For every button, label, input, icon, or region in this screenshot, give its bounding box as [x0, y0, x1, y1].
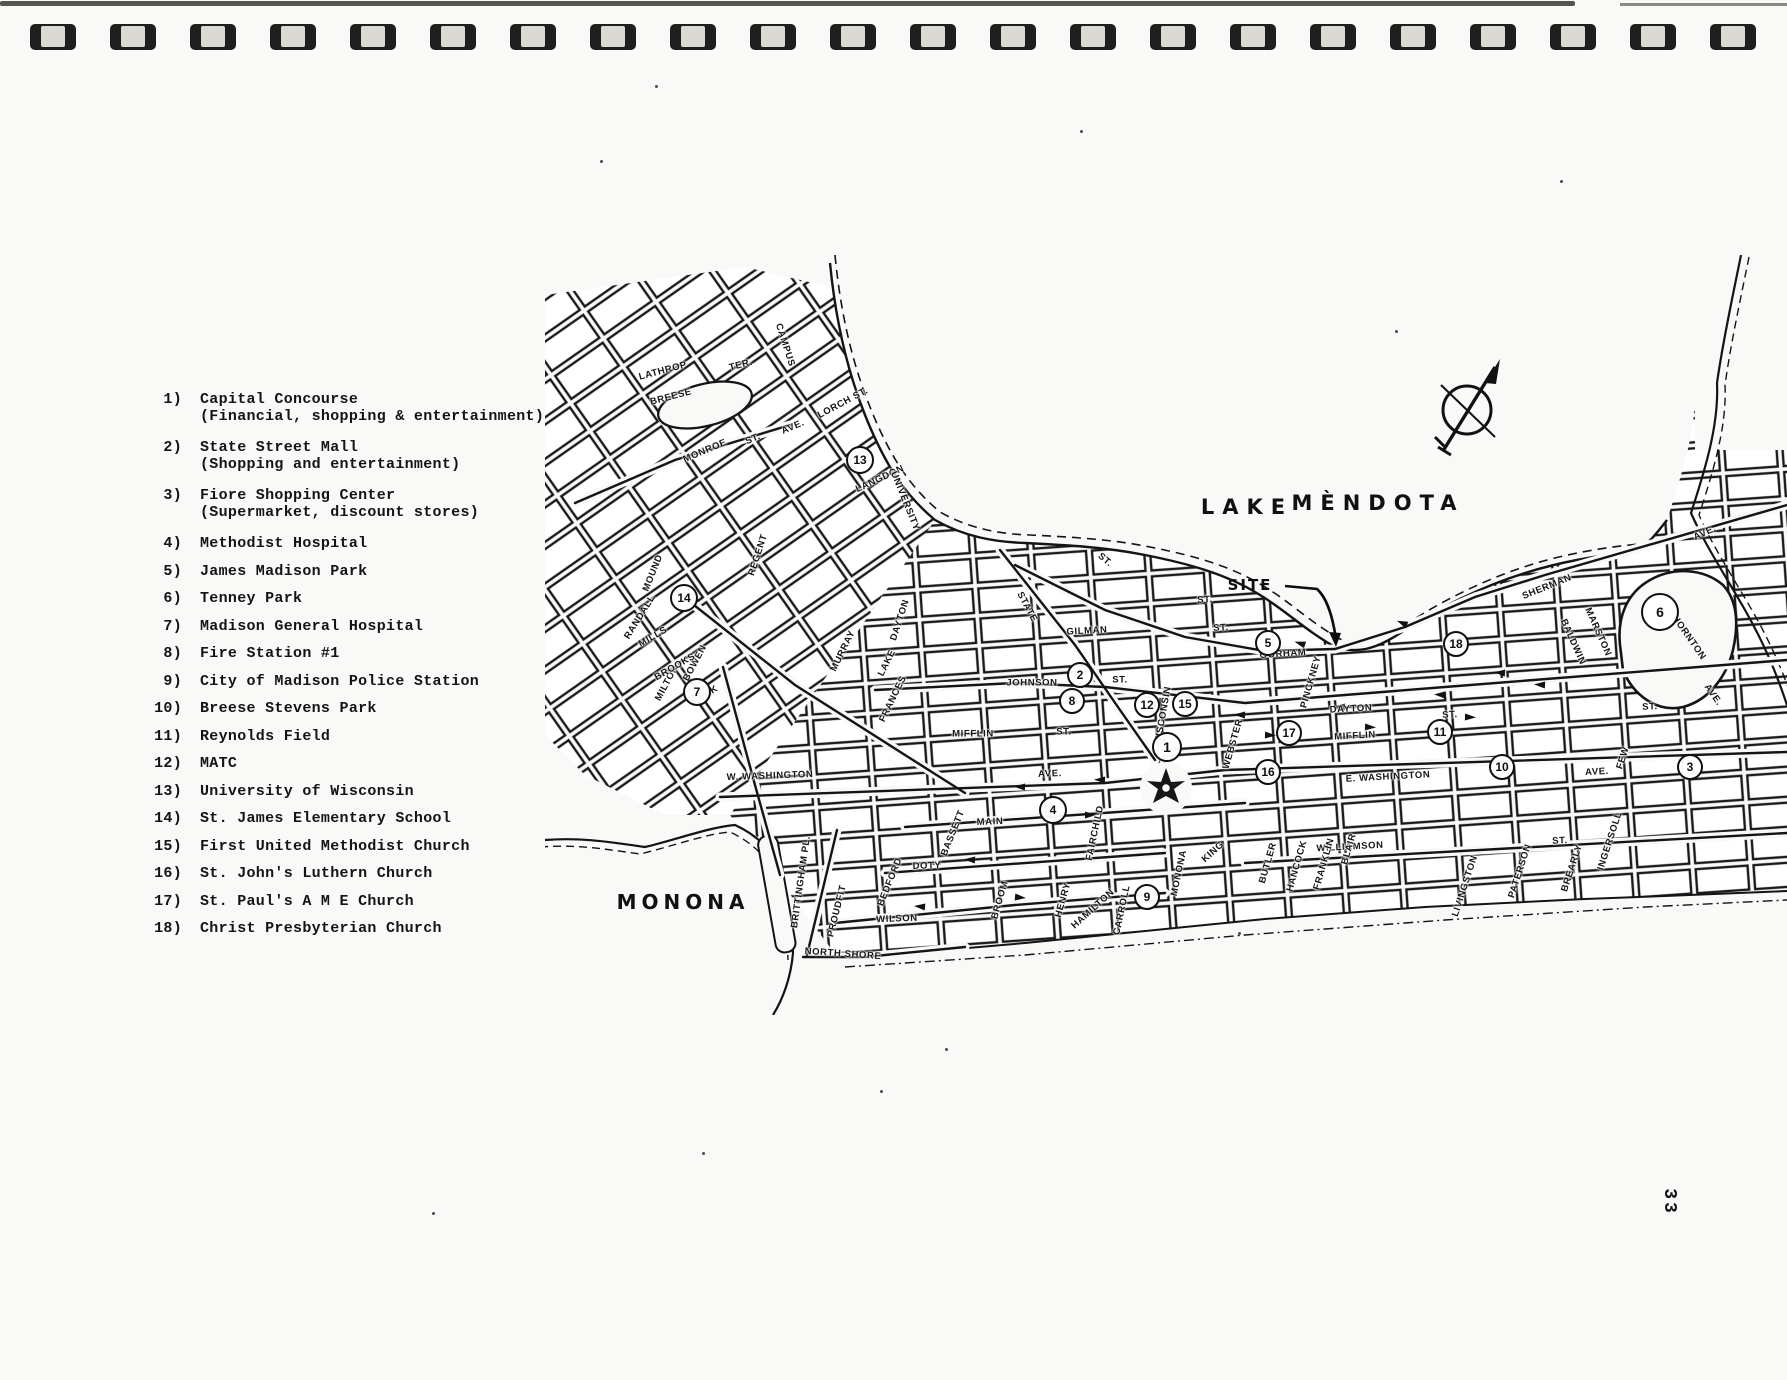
legend-item: 1)Capital Concourse (Financial, shopping…: [148, 392, 588, 425]
map-marker-7: 7: [683, 678, 711, 706]
scan-speck: [600, 160, 603, 163]
map-marker-10: 10: [1489, 754, 1515, 780]
binding-hole: [1470, 24, 1516, 50]
binding-hole: [1710, 24, 1756, 50]
page-number: 33: [1659, 1188, 1679, 1216]
legend-item-number: 1): [148, 392, 182, 425]
map-marker-13: 13: [846, 446, 874, 474]
legend-item-label: Capital Concourse (Financial, shopping &…: [200, 392, 544, 425]
street-name-label: ST.: [1056, 727, 1072, 738]
scan-speck: [1238, 932, 1241, 935]
street-name-label: AVE.: [1038, 768, 1062, 780]
legend-item-number: 15): [148, 839, 182, 856]
legend-item-label: Fire Station #1: [200, 646, 340, 663]
legend-item-label: St. James Elementary School: [200, 811, 451, 828]
binding-hole: [1390, 24, 1436, 50]
street-name-label: ST.: [1552, 835, 1568, 847]
legend-item: 9)City of Madison Police Station: [148, 674, 588, 691]
legend-item: 17)St. Paul's A M E Church: [148, 894, 588, 911]
legend-item-number: 11): [148, 729, 182, 746]
legend-item-number: 7): [148, 619, 182, 636]
legend-item: 10)Breese Stevens Park: [148, 701, 588, 718]
street-name-label: ST.: [1112, 675, 1128, 686]
map-marker-5: 5: [1255, 630, 1281, 656]
legend-item-label: State Street Mall (Shopping and entertai…: [200, 440, 460, 473]
binding-hole: [1230, 24, 1276, 50]
legend-item-label: St. Paul's A M E Church: [200, 894, 414, 911]
binding-hole: [670, 24, 716, 50]
map-marker-18: 18: [1443, 631, 1469, 657]
legend-item-label: Christ Presbyterian Church: [200, 921, 442, 938]
binding-hole: [910, 24, 956, 50]
map-marker-11: 11: [1427, 719, 1453, 745]
legend-item-number: 9): [148, 674, 182, 691]
scan-speck: [655, 85, 658, 88]
street-name-label: MIFFLIN: [1334, 729, 1376, 742]
legend-item-label: Tenney Park: [200, 591, 302, 608]
legend-item-label: Fiore Shopping Center (Supermarket, disc…: [200, 488, 479, 521]
map-marker-1: 1: [1152, 732, 1182, 762]
legend-item-number: 18): [148, 921, 182, 938]
legend-item-number: 6): [148, 591, 182, 608]
scan-speck: [1080, 130, 1083, 133]
legend-item: 15)First United Methodist Church: [148, 839, 588, 856]
binding-holes-row: [0, 24, 1787, 56]
street-name-label: GILMAN: [1066, 624, 1108, 637]
street-name-label: DAYTON: [1329, 702, 1372, 715]
scanned-report-page: { "page": { "number": "33", "binding_hol…: [0, 0, 1787, 1380]
legend-item-number: 8): [148, 646, 182, 663]
legend-item-number: 16): [148, 866, 182, 883]
binding-hole: [990, 24, 1036, 50]
binding-hole: [1150, 24, 1196, 50]
scan-speck: [880, 1090, 883, 1093]
binding-hole: [430, 24, 476, 50]
legend-item-label: MATC: [200, 756, 237, 773]
binding-hole: [1550, 24, 1596, 50]
legend-item: 14)St. James Elementary School: [148, 811, 588, 828]
legend-item-number: 2): [148, 440, 182, 473]
site-label: SITE: [1228, 576, 1273, 594]
scan-speck: [1560, 180, 1563, 183]
legend-item-label: Madison General Hospital: [200, 619, 423, 636]
legend-item: 12)MATC: [148, 756, 588, 773]
legend-item-label: Methodist Hospital: [200, 536, 367, 553]
legend-item-number: 10): [148, 701, 182, 718]
binding-hole: [750, 24, 796, 50]
binding-hole: [1070, 24, 1116, 50]
legend-item-label: James Madison Park: [200, 564, 367, 581]
legend-item-number: 12): [148, 756, 182, 773]
legend-item-label: University of Wisconsin: [200, 784, 414, 801]
map-marker-15: 15: [1172, 691, 1198, 717]
street-name-label: ST.: [1197, 594, 1213, 606]
legend-item-number: 14): [148, 811, 182, 828]
street-name-label: ST.: [1642, 701, 1658, 713]
legend-item-number: 13): [148, 784, 182, 801]
legend-item: 5)James Madison Park: [148, 564, 588, 581]
map-marker-12: 12: [1134, 692, 1160, 718]
binding-hole: [190, 24, 236, 50]
map-marker-9: 9: [1134, 884, 1160, 910]
map-marker-4: 4: [1039, 796, 1067, 824]
legend-item: 2)State Street Mall (Shopping and entert…: [148, 440, 588, 473]
binding-hole: [590, 24, 636, 50]
map-marker-17: 17: [1276, 720, 1302, 746]
legend-item: 8)Fire Station #1: [148, 646, 588, 663]
street-name-label: DOTY: [912, 860, 941, 872]
legend-item: 6)Tenney Park: [148, 591, 588, 608]
binding-hole: [110, 24, 156, 50]
binding-hole: [1310, 24, 1356, 50]
legend-item-number: 4): [148, 536, 182, 553]
street-name-label: MIFFLIN: [952, 729, 994, 740]
legend-item: 16)St. John's Luthern Church: [148, 866, 588, 883]
map-marker-8: 8: [1059, 688, 1085, 714]
madison-isthmus-map: LAKEMÈNDOTAMONONASITEGILMANST.GORHAMJOHN…: [545, 255, 1787, 1015]
map-legend: 1)Capital Concourse (Financial, shopping…: [148, 392, 588, 949]
scan-speck: [945, 1048, 948, 1051]
lake-name-label: MONONA: [617, 890, 750, 914]
binding-hole: [30, 24, 76, 50]
legend-item: 11)Reynolds Field: [148, 729, 588, 746]
scan-speck: [432, 1212, 435, 1215]
street-name-label: MAIN: [976, 816, 1003, 828]
map-marker-14: 14: [670, 584, 698, 612]
lake-name-label: LAKE: [1201, 495, 1293, 519]
map-marker-16: 16: [1255, 759, 1281, 785]
binding-hole: [830, 24, 876, 50]
street-name-label: ST.: [1213, 622, 1229, 634]
binding-hole: [350, 24, 396, 50]
street-name-label: WILSON: [876, 913, 918, 925]
legend-item: 18)Christ Presbyterian Church: [148, 921, 588, 938]
legend-item-number: 3): [148, 488, 182, 521]
lake-name-label: MÈNDOTA: [1291, 491, 1464, 515]
scan-speck: [702, 1152, 705, 1155]
map-marker-2: 2: [1067, 662, 1093, 688]
legend-item-label: First United Methodist Church: [200, 839, 470, 856]
legend-item: 7)Madison General Hospital: [148, 619, 588, 636]
legend-item-label: Breese Stevens Park: [200, 701, 377, 718]
scan-speck: [1395, 330, 1398, 333]
legend-item: 13)University of Wisconsin: [148, 784, 588, 801]
map-marker-3: 3: [1677, 754, 1703, 780]
legend-item-number: 17): [148, 894, 182, 911]
legend-item-label: Reynolds Field: [200, 729, 330, 746]
street-name-label: AVE.: [1585, 766, 1609, 778]
capitol-building-icon: [1140, 762, 1192, 814]
legend-item-label: St. John's Luthern Church: [200, 866, 433, 883]
legend-item: 4)Methodist Hospital: [148, 536, 588, 553]
binding-hole: [510, 24, 556, 50]
legend-item: 3)Fiore Shopping Center (Supermarket, di…: [148, 488, 588, 521]
scan-top-edge-smudge-2: [1620, 3, 1787, 6]
street-name-label: JOHNSON: [1006, 678, 1057, 689]
scan-top-edge-smudge: [0, 1, 1575, 6]
map-marker-6: 6: [1641, 593, 1679, 631]
binding-hole: [270, 24, 316, 50]
binding-hole: [1630, 24, 1676, 50]
legend-item-label: City of Madison Police Station: [200, 674, 479, 691]
legend-item-number: 5): [148, 564, 182, 581]
